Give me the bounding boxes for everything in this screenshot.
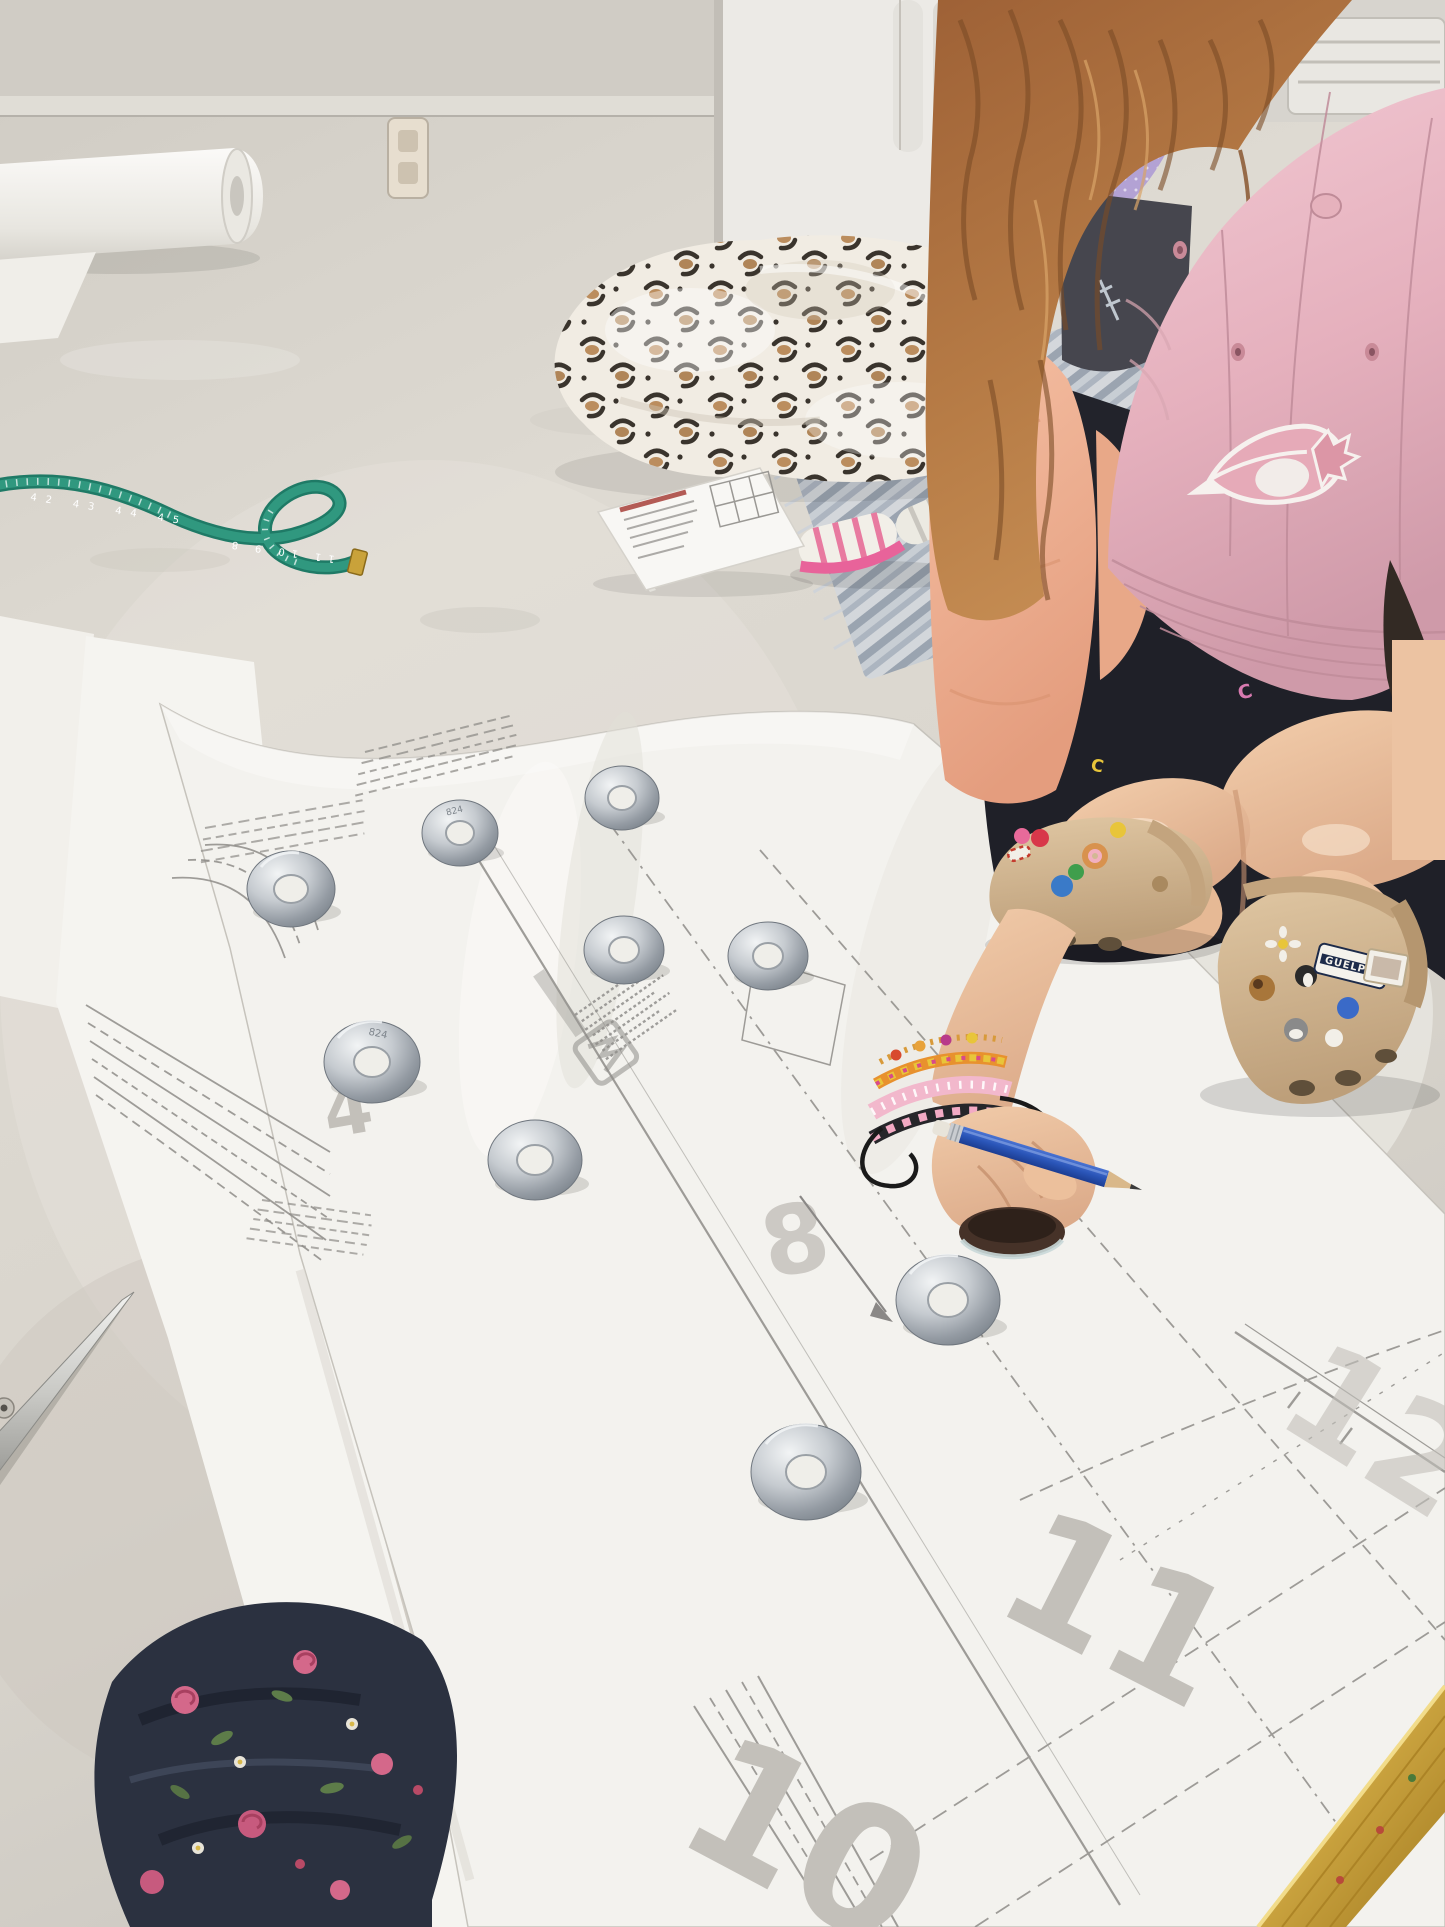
- dog-charm: [1249, 975, 1275, 1001]
- washer: [728, 922, 808, 990]
- floral-fabric: [94, 1602, 457, 1927]
- washer: [488, 1120, 582, 1200]
- dark-puck-weight: [959, 1207, 1065, 1257]
- baseboard: [0, 96, 745, 116]
- power-outlet: [388, 118, 428, 198]
- washer: [751, 1424, 861, 1520]
- stitch-charm: [1051, 875, 1073, 897]
- washer: [247, 851, 335, 927]
- blue-jay-charm: [1337, 997, 1359, 1019]
- photo-canvas: 42 43 44 45 11 10 9 8: [0, 0, 1445, 1927]
- washer: 824: [324, 1021, 420, 1103]
- pink-heart-charm: [1014, 828, 1030, 844]
- strawberry-charm: [1031, 829, 1049, 847]
- green-charm: [1068, 864, 1084, 880]
- washer-arrowed: [896, 1255, 1000, 1345]
- wall-left: [0, 0, 745, 112]
- cap-button: [1311, 194, 1341, 218]
- washer: [584, 916, 664, 984]
- photo-sewing-pattern-scene: 42 43 44 45 11 10 9 8: [0, 0, 1445, 1927]
- yellow-charm: [1110, 822, 1126, 838]
- washer: [585, 766, 659, 830]
- washer: 824: [422, 800, 498, 866]
- right-edge-skin: [1392, 640, 1445, 860]
- bunny-charm: [1325, 1029, 1343, 1047]
